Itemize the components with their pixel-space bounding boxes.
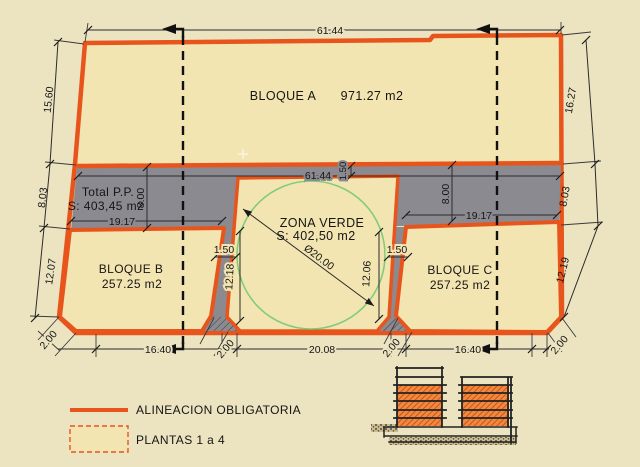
bloque-b-area: 257.25 m2 — [102, 277, 162, 291]
section-arrow-icon — [162, 24, 176, 34]
total-pp-area: S: 403,45 m2 — [68, 199, 144, 213]
dim-inner-width: 61.44 — [305, 170, 331, 182]
bloque-b-label: BLOQUE B — [99, 262, 164, 276]
legend-floors-label: PLANTAS 1 a 4 — [136, 433, 225, 447]
bloque-a-label: BLOQUE A — [250, 89, 317, 103]
legend: ALINEACION OBLIGATORIA PLANTAS 1 a 4 — [70, 403, 301, 452]
dim-left-b: 12.07 — [43, 258, 59, 286]
site-plan-drawing: 61.44 61.44 1.50 15.60 8.03 12.07 2.00 1… — [0, 0, 640, 467]
dim-bottom-verde: 20.08 — [309, 344, 335, 356]
dim-pp-width-right: 19.17 — [466, 210, 492, 222]
section-arrow-icon — [476, 24, 490, 34]
bloque-c-label: BLOQUE C — [427, 263, 492, 277]
dim-left-pp: 8.03 — [36, 187, 50, 209]
dim-verde-height-right: 12.06 — [360, 260, 373, 287]
dim-pp-width-left: 19.17 — [109, 216, 135, 228]
dim-verde-height-left: 12.18 — [223, 263, 236, 290]
dim-pp-height-right: 8.00 — [440, 184, 452, 205]
zona-verde-label: ZONA VERDE — [280, 216, 365, 230]
dim-bottom-b: 16.40 — [145, 344, 171, 356]
site-plan-page: 61.44 61.44 1.50 15.60 8.03 12.07 2.00 1… — [0, 0, 640, 467]
tower-left-floors — [397, 385, 442, 426]
bloque-c-area: 257.25 m2 — [430, 278, 490, 292]
dim-gap-right: 1.50 — [387, 244, 408, 256]
dim-chamfer-br: 2.00 — [549, 333, 571, 356]
dim-gap-left: 1.50 — [214, 244, 235, 256]
dim-right-a: 16.27 — [563, 86, 579, 114]
dim-bottom-c: 16.40 — [455, 344, 481, 356]
tower-right-floors — [462, 385, 509, 426]
bloque-a-area: 971.27 m2 — [341, 89, 404, 103]
ground-hatch-bottom — [389, 437, 516, 445]
legend-floors-swatch-icon — [70, 426, 128, 452]
dim-right-pp: 8.03 — [557, 185, 572, 207]
zona-verde-area: S: 402,50 m2 — [276, 229, 355, 243]
dim-verde-setback: 1.50 — [338, 162, 349, 181]
dim-left-a: 15.60 — [42, 86, 57, 114]
bloque-c-outline — [396, 222, 561, 332]
legend-alignment-label: ALINEACION OBLIGATORIA — [136, 403, 301, 417]
dim-top-width: 61.44 — [317, 25, 343, 37]
total-pp-label: Total P.P. — [82, 185, 134, 199]
dim-chamfer-mr: 2.00 — [381, 336, 403, 359]
building-elevation — [371, 367, 517, 445]
